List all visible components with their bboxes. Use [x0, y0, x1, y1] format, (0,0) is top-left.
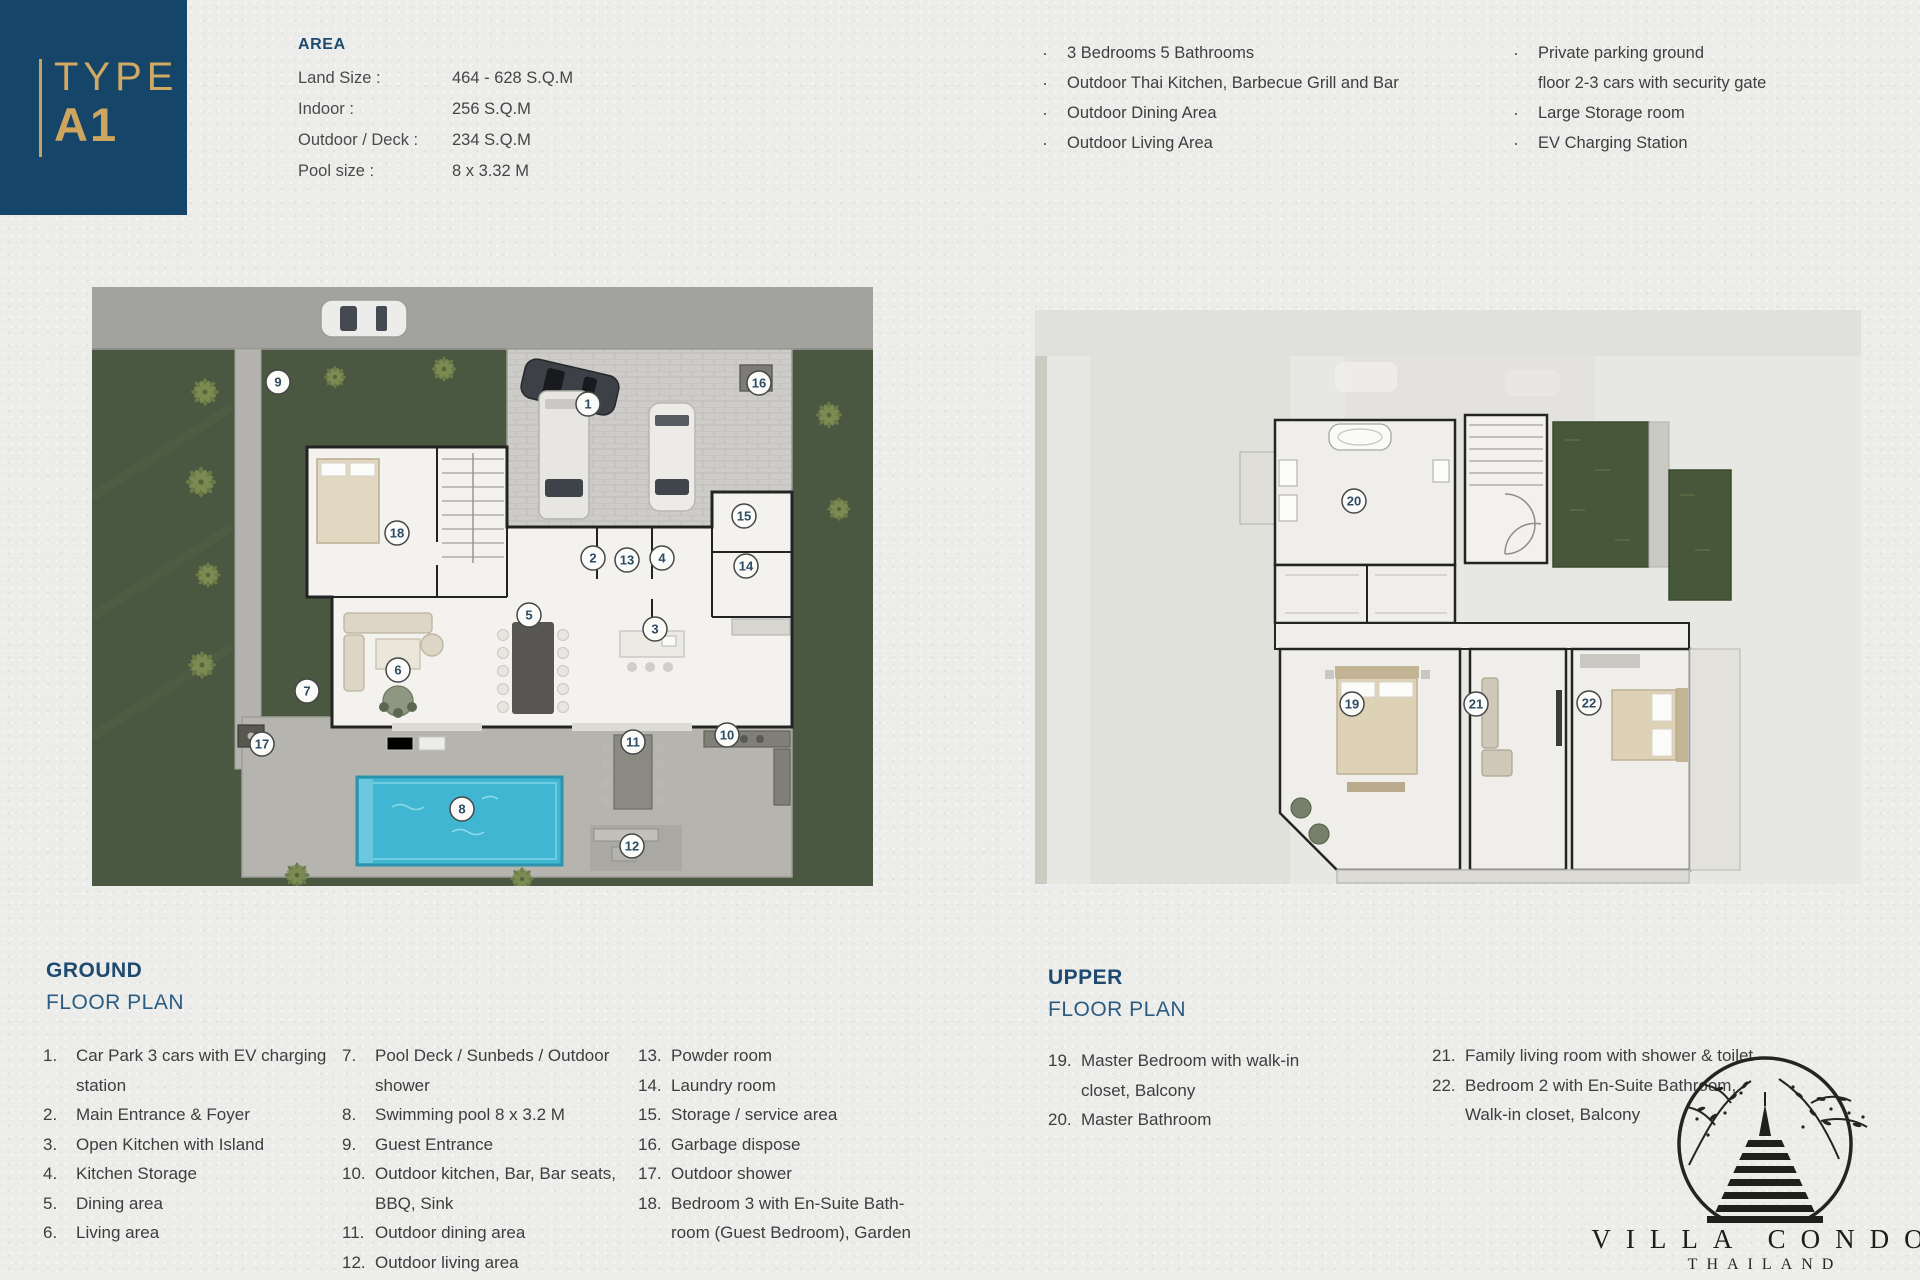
area-title: AREA [298, 36, 346, 54]
feature-item: ·Outdoor Thai Kitchen, Barbecue Grill an… [1042, 68, 1399, 98]
plan-marker-number: 15 [737, 509, 751, 524]
plan-marker-number: 16 [752, 376, 766, 391]
palm-tree [324, 366, 346, 388]
villa-condo-logo [1648, 1046, 1882, 1232]
legend-item: 18.Bedroom 3 with En-Suite Bath-room (Gu… [638, 1189, 911, 1248]
door-opening [392, 723, 482, 731]
legend-item: 4.Kitchen Storage [43, 1159, 326, 1189]
plan-marker-number: 21 [1469, 697, 1483, 712]
sunbed [387, 737, 413, 750]
plan-marker-number: 7 [303, 684, 310, 699]
upper-floor-plan-svg: 19202122 [1035, 310, 1861, 884]
area-row: Pool size :8 x 3.32 M [298, 156, 573, 187]
street [92, 287, 873, 349]
plan-marker-number: 14 [739, 559, 754, 574]
legend-item: 5.Dining area [43, 1189, 326, 1219]
plan-marker-number: 9 [274, 375, 281, 390]
logo-branch-right [1779, 1079, 1867, 1159]
legend-item: 17.Outdoor shower [638, 1159, 911, 1189]
guest-bed [317, 459, 379, 543]
brochure-page: TYPE A1 AREA Land Size :464 - 628 S.Q.MI… [0, 0, 1920, 1280]
type-code: A1 [54, 97, 118, 152]
area-row: Land Size :464 - 628 S.Q.M [298, 63, 573, 94]
plan-marker-number: 13 [620, 553, 634, 568]
master-bedroom [1280, 649, 1460, 870]
plan-marker-number: 6 [394, 663, 401, 678]
ground-plan-subtitle: FLOOR PLAN [46, 991, 184, 1015]
ground-legend-col1: 1.Car Park 3 cars with EV chargingstatio… [43, 1041, 326, 1248]
legend-item: 16.Garbage dispose [638, 1130, 911, 1160]
plan-marker-number: 18 [390, 526, 404, 541]
plan-marker-number: 8 [458, 802, 465, 817]
palm-tree [191, 378, 219, 406]
palm-tree [188, 651, 216, 679]
legend-item: 7.Pool Deck / Sunbeds / Outdoorshower [342, 1041, 616, 1100]
feature-item: ·Large Storage room [1513, 98, 1766, 128]
feature-item: ·3 Bedrooms 5 Bathrooms [1042, 38, 1399, 68]
plan-marker-number: 20 [1347, 494, 1361, 509]
upper-legend-col1: 19.Master Bedroom with walk-incloset, Ba… [1048, 1046, 1299, 1135]
type-a1-badge: TYPE A1 [0, 0, 187, 215]
plan-marker-number: 10 [720, 728, 734, 743]
legend-item: 9.Guest Entrance [342, 1130, 616, 1160]
logo-name: VILLA CONDO [1580, 1224, 1920, 1255]
legend-item: 20.Master Bathroom [1048, 1105, 1299, 1135]
area-row: Outdoor / Deck :234 S.Q.M [298, 125, 573, 156]
small-balcony [1240, 452, 1275, 524]
palm-tree [827, 497, 851, 521]
ground-legend-col2: 7.Pool Deck / Sunbeds / Outdoorshower8.S… [342, 1041, 616, 1277]
plan-marker-number: 2 [589, 551, 596, 566]
ground-floor-plan-image: 123456789101112131415161718 [92, 287, 873, 886]
legend-item: 10.Outdoor kitchen, Bar, Bar seats,BBQ, … [342, 1159, 616, 1218]
plan-marker-number: 12 [625, 839, 639, 854]
plan-marker-number: 4 [658, 551, 666, 566]
legend-item: 6.Living area [43, 1218, 326, 1248]
legend-item: 12.Outdoor living area [342, 1248, 616, 1278]
upper-plan-title: UPPER [1048, 966, 1123, 990]
type-label: TYPE [54, 55, 178, 100]
feature-list-2: ·Private parking groundfloor 2-3 cars wi… [1513, 38, 1766, 158]
upper-plan-subtitle: FLOOR PLAN [1048, 998, 1186, 1022]
legend-item: 1.Car Park 3 cars with EV chargingstatio… [43, 1041, 326, 1100]
palm-tree [816, 402, 843, 429]
master-bathroom [1275, 420, 1455, 565]
palm-tree [195, 562, 220, 587]
street-car [321, 300, 407, 337]
ground-plan-title: GROUND [46, 959, 142, 983]
plan-marker-number: 17 [255, 737, 269, 752]
guest-walkway [235, 349, 261, 769]
legend-item: 19.Master Bedroom with walk-incloset, Ba… [1048, 1046, 1299, 1105]
sunbed [419, 737, 445, 750]
area-table: Land Size :464 - 628 S.Q.MIndoor :256 S.… [298, 63, 573, 187]
legend-item: 2.Main Entrance & Foyer [43, 1100, 326, 1130]
plan-marker-number: 19 [1345, 697, 1359, 712]
plan-marker-number: 3 [651, 622, 658, 637]
legend-item: 15.Storage / service area [638, 1100, 911, 1130]
plan-marker-number: 5 [525, 608, 532, 623]
area-row: Indoor :256 S.Q.M [298, 94, 573, 125]
logo-subtitle: THAILAND [1580, 1256, 1920, 1274]
staircase [1465, 415, 1547, 563]
legend-item: 8.Swimming pool 8 x 3.2 M [342, 1100, 616, 1130]
feature-item: ·EV Charging Station [1513, 128, 1766, 158]
legend-item: 14.Laundry room [638, 1071, 911, 1101]
walk-in-closet [1275, 565, 1455, 623]
feature-list-1: ·3 Bedrooms 5 Bathrooms·Outdoor Thai Kit… [1042, 38, 1399, 158]
parked-white-car [649, 403, 695, 511]
ground-legend-col3: 13.Powder room14.Laundry room15.Storage … [638, 1041, 911, 1248]
legend-item: 11.Outdoor dining area [342, 1218, 616, 1248]
bedroom-2 [1572, 649, 1690, 870]
feature-item: ·Outdoor Dining Area [1042, 98, 1399, 128]
plan-marker-number: 11 [626, 735, 640, 750]
legend-item: 3.Open Kitchen with Island [43, 1130, 326, 1160]
legend-item: 13.Powder room [638, 1041, 911, 1071]
badge-accent-line [39, 59, 42, 157]
upper-floor-plan-image: 19202122 [1035, 310, 1861, 884]
feature-item: ·Outdoor Living Area [1042, 128, 1399, 158]
side-terrace [1690, 649, 1740, 870]
ground-floor-plan-svg: 123456789101112131415161718 [92, 287, 873, 886]
palm-tree [431, 356, 456, 381]
family-living-room [1470, 649, 1566, 870]
plan-marker-number: 1 [584, 397, 591, 412]
plan-marker-number: 22 [1582, 696, 1596, 711]
feature-item: ·Private parking groundfloor 2-3 cars wi… [1513, 38, 1766, 98]
balcony [1337, 870, 1689, 883]
corridor [1275, 623, 1689, 649]
palm-tree [186, 467, 217, 498]
